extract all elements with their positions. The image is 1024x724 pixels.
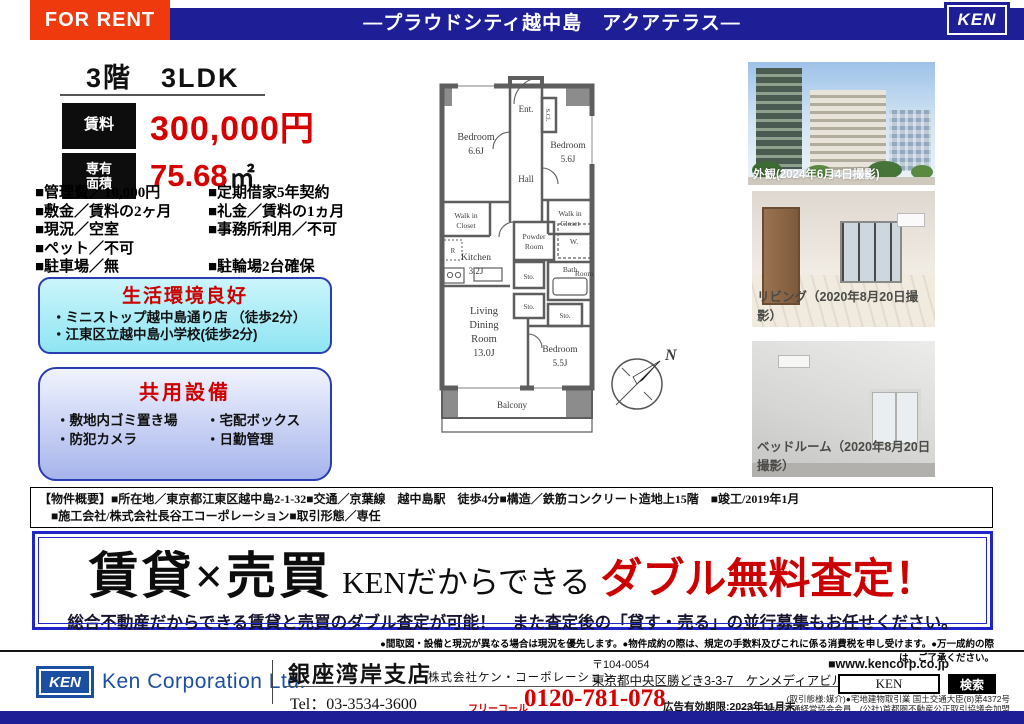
overview-label: 【物件概要】 (39, 492, 111, 506)
room-label-entrance: Ent. (519, 104, 534, 114)
promo-headline: 賃貸×売買 KENだからできる ダブル無料査定！ (35, 536, 990, 608)
room-size-bedroom3: 5.5J (553, 358, 568, 368)
room-label-powder2: Room (525, 242, 544, 251)
environment-box: 生活環境良好 ・ミニストップ越中島通り店 （徒歩2分） ・江東区立越中島小学校(… (38, 277, 332, 354)
property-overview-box: 【物件概要】■所在地／東京都江東区越中島2-1-32■交通／京葉線 越中島駅 徒… (30, 487, 993, 528)
overview-line1-text: ■所在地／東京都江東区越中島2-1-32■交通／京葉線 越中島駅 徒歩4分■構造… (111, 492, 799, 506)
detail-item: ■管理費／10,000円 (35, 181, 208, 200)
promo-subline: 総合不動産だからできる賃貸と売買のダブル査定が可能！ また査定後の「貸す・売る」… (35, 609, 990, 633)
floor-plan: Bedroom 6.6J Ent. S.Cl. Hall Bedroom 5.6… (432, 72, 724, 474)
room-label-storage2: Sto. (523, 303, 534, 311)
detail-item: ■定期借家5年契約 (208, 181, 388, 200)
room-label-wic-left2: Closet (456, 221, 476, 230)
room-label-powder: Powder (523, 232, 546, 241)
room-label-bedroom1: Bedroom (457, 132, 494, 143)
room-label-living3: Room (471, 334, 497, 345)
rent-label: 賃料 (62, 103, 136, 149)
room-label-wic-right: Walk in (558, 209, 582, 218)
room-size-bedroom1: 6.6J (468, 147, 484, 157)
website-url[interactable]: ■www.kencorp.co.jp (828, 657, 949, 671)
detail-item: ■駐輪場2台確保 (208, 255, 388, 274)
overview-line1: 【物件概要】■所在地／東京都江東区越中島2-1-32■交通／京葉線 越中島駅 徒… (39, 491, 984, 508)
rent-row: 賃料 300,000円 (62, 101, 315, 150)
overview-line2: ■施工会社/株式会社長谷工コーポレーション■取引形態／専任 (39, 508, 984, 525)
facility-item: ・防犯カメラ (56, 430, 206, 449)
ken-footer-logo-text: KEN (39, 669, 91, 695)
freecall-number: 0120-781-078 (524, 685, 666, 713)
license-line1: (取引態様:媒介)●宅地建物取引業 国土交通大臣(8)第4372号 (735, 694, 1010, 704)
room-size-bedroom2: 5.6J (561, 154, 576, 164)
floor-plan-drawing: Bedroom 6.6J Ent. S.Cl. Hall Bedroom 5.6… (432, 72, 724, 474)
room-label-bedroom2: Bedroom (550, 141, 586, 151)
living-photo: リビング（2020年8月20日撮影） (752, 191, 935, 327)
detail-item: ■事務所利用／不可 (208, 218, 388, 237)
rental-flyer: FOR RENT ―プラウドシティ越中島 アクアテラス― KEN 3階 3LDK… (0, 0, 1024, 724)
photo-caption-bedroom: ベッドルーム（2020年8月20日撮影） (757, 436, 935, 474)
branch-name: 銀座湾岸支店 (288, 657, 432, 689)
bottom-bar (0, 711, 1024, 724)
detail-item: ■ペット／不可 (35, 237, 208, 256)
promo-banner: 賃貸×売買 KENだからできる ダブル無料査定！ 総合不動産だからできる賃貸と売… (32, 531, 993, 630)
facilities-box-title: 共用設備 (40, 376, 330, 405)
room-label-living1: Living (470, 306, 499, 317)
headline-rule (60, 94, 265, 96)
search-button[interactable]: 検索 (948, 674, 996, 694)
ken-footer-logo: KEN (36, 666, 94, 698)
detail-item: ■礼金／賃料の1ヵ月 (208, 200, 388, 219)
detail-item: ■現況／空室 (35, 218, 208, 237)
search-keyword-box[interactable]: KEN (838, 674, 940, 694)
company-name-en: Ken Corporation Ltd. (102, 670, 306, 694)
room-label-hall: Hall (518, 174, 534, 184)
compass-north-label: N (664, 347, 678, 364)
footer-separator (0, 650, 1024, 652)
facility-item: ・宅配ボックス (206, 411, 331, 430)
for-rent-badge: FOR RENT (30, 0, 170, 40)
promo-headline-left: 賃貸×売買 (89, 536, 333, 608)
facility-item: ・敷地内ゴミ置き場 (56, 411, 206, 430)
company-name-jp: 株式会社ケン・コーポレーション (428, 669, 615, 685)
environment-item: ・ミニストップ越中島通り店 （徒歩2分） (52, 309, 330, 326)
photo-window (840, 221, 902, 283)
photo-caption-living: リビング（2020年8月20日撮影） (757, 286, 935, 324)
photo-caption-exterior: 外観(2024年6月4日撮影) (753, 166, 880, 182)
promo-headline-mid: KENだからできる (342, 557, 590, 602)
environment-item: ・江東区立越中島小学校(徒歩2分) (52, 326, 330, 343)
room-size-living: 13.0J (473, 348, 495, 359)
room-label-wic-right2: Closet (560, 219, 580, 228)
room-label-wic-left: Walk in (454, 211, 478, 220)
property-title: ―プラウドシティ越中島 アクアテラス― (180, 8, 924, 40)
photo-air-conditioner (897, 213, 925, 227)
environment-box-title: 生活環境良好 (40, 281, 330, 308)
facility-item: ・日勤管理 (206, 430, 331, 449)
exterior-photo: 外観(2024年6月4日撮影) (748, 62, 935, 185)
property-details-list: ■管理費／10,000円 ■定期借家5年契約 ■敷金／賃料の2ヶ月 ■礼金／賃料… (35, 181, 388, 274)
bedroom-photo: ベッドルーム（2020年8月20日撮影） (752, 341, 935, 477)
room-label-shoe-closet: S.Cl. (544, 108, 551, 121)
room-label-living2: Dining (469, 320, 499, 331)
room-label-bedroom3: Bedroom (542, 345, 578, 355)
detail-item (208, 237, 388, 256)
detail-item: ■駐車場／無 (35, 255, 208, 274)
room-label-refrigerator: R (451, 247, 456, 255)
room-label-storage3: Sto. (559, 312, 570, 320)
environment-items: ・ミニストップ越中島通り店 （徒歩2分） ・江東区立越中島小学校(徒歩2分) (40, 309, 330, 343)
footer-divider (272, 660, 273, 704)
compass-icon (612, 359, 662, 409)
room-label-storage1: Sto. (523, 273, 534, 281)
room-label-washer: W. (570, 237, 578, 246)
facilities-box: 共用設備 ・敷地内ゴミ置き場 ・宅配ボックス ・防犯カメラ ・日勤管理 (38, 367, 332, 481)
room-label-balcony: Balcony (497, 400, 527, 410)
facilities-items: ・敷地内ゴミ置き場 ・宅配ボックス ・防犯カメラ ・日勤管理 (40, 411, 330, 449)
room-label-kitchen: Kitchen (461, 253, 491, 263)
ken-logo-text: KEN (947, 5, 1007, 35)
photo-air-conditioner (778, 355, 810, 368)
photo-building (756, 68, 802, 169)
detail-item: ■敷金／賃料の2ヶ月 (35, 200, 208, 219)
floor-layout-headline: 3階 3LDK (86, 56, 240, 95)
promo-headline-right: ダブル無料査定！ (600, 545, 936, 606)
room-size-kitchen: 3.2J (469, 266, 484, 276)
ken-logo: KEN (944, 2, 1010, 38)
room-label-bath2: Room (575, 269, 594, 278)
rent-value: 300,000円 (150, 101, 315, 150)
